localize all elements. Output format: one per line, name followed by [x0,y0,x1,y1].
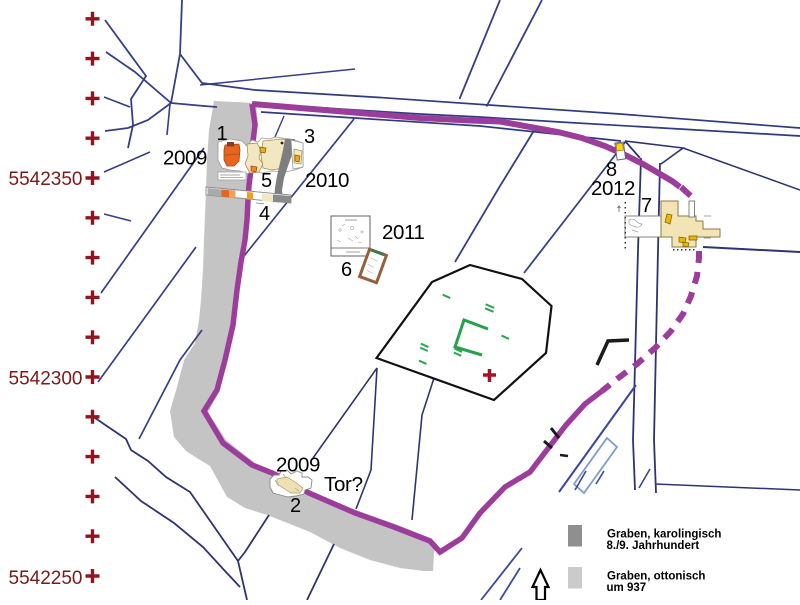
svg-text:5542300: 5542300 [9,369,83,390]
svg-text:Graben, karolingisch: Graben, karolingisch [607,529,721,541]
svg-text:2: 2 [290,495,301,517]
svg-text:6: 6 [341,259,352,281]
svg-text:Tor?: Tor? [324,473,363,496]
svg-text:3: 3 [304,126,315,148]
svg-text:Graben, ottonisch: Graben, ottonisch [607,571,705,583]
svg-text:2011: 2011 [382,221,424,244]
svg-text:2009: 2009 [276,454,320,477]
svg-text:5542250: 5542250 [9,568,83,589]
svg-text:2009: 2009 [163,147,207,170]
svg-text:5542350: 5542350 [9,169,83,190]
svg-text:7: 7 [641,195,652,217]
svg-text:5: 5 [261,170,272,192]
svg-text:2010: 2010 [305,169,349,192]
svg-text:4: 4 [259,203,270,225]
svg-text:2012: 2012 [591,177,635,200]
svg-text:um 937: um 937 [607,582,647,594]
svg-text:8./9. Jahrhundert: 8./9. Jahrhundert [607,540,700,552]
svg-text:1: 1 [217,123,228,145]
